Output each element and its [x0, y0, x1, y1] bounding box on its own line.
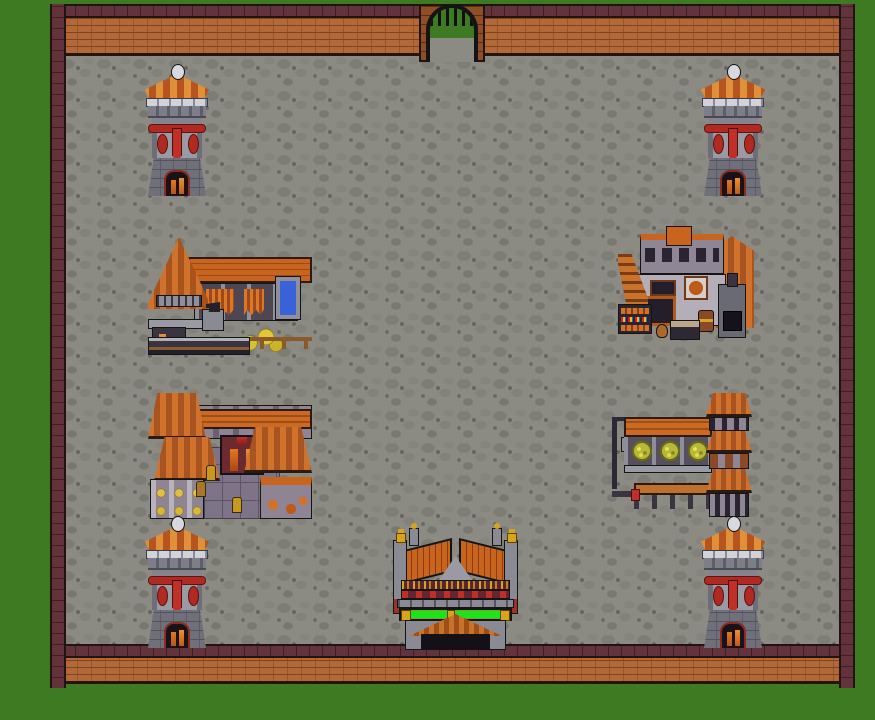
tower-shield-icon: [713, 586, 724, 606]
shop-window: [650, 280, 676, 296]
tower-red-banner: [728, 580, 738, 614]
market-figure: [196, 481, 206, 497]
gold-ornament-band: [401, 580, 510, 590]
tower-battlement: [148, 558, 206, 570]
tower-shield-icon: [157, 134, 168, 154]
stone-entablature: [397, 599, 514, 608]
tower-tier-wall: [709, 417, 749, 431]
game-stage: [0, 0, 875, 720]
gate-opening[interactable]: [430, 8, 474, 62]
tower-red-banner: [172, 580, 182, 614]
anvil: [202, 309, 224, 331]
tower-tier-roof: [706, 431, 752, 453]
market-side-stall[interactable]: [260, 477, 312, 519]
blue-door[interactable]: [276, 277, 300, 319]
produce-stall[interactable]: [612, 393, 752, 517]
portcullis-bars-icon: [430, 8, 474, 26]
red-colonnade-band: [401, 590, 510, 599]
market-hall[interactable]: [148, 393, 312, 520]
barrel: [698, 310, 714, 332]
wall-left: [50, 4, 66, 688]
tower-shield-icon: [188, 586, 199, 606]
roof-tower: [706, 393, 752, 517]
wall-brick: [50, 658, 855, 684]
clay-pot: [656, 324, 668, 338]
shop-sign: [684, 276, 708, 300]
pump-lever[interactable]: [612, 491, 638, 497]
tower-top-left[interactable]: [140, 64, 214, 196]
crate: [670, 320, 700, 340]
tower-bottom-right[interactable]: [696, 516, 770, 648]
tower-finial: [727, 64, 741, 80]
tower-shield-icon: [744, 134, 755, 154]
tower-tier-wall: [709, 453, 749, 469]
wreath[interactable]: [688, 441, 708, 461]
tower-battlement: [704, 558, 762, 570]
smith-vent: [156, 295, 202, 307]
hanging-pole: [612, 417, 617, 489]
tower-tier-roof: [706, 469, 752, 493]
hall-doorway[interactable]: [421, 634, 490, 650]
market-figure: [232, 497, 242, 513]
stall-canopy-roof: [624, 417, 712, 437]
stove: [718, 284, 746, 338]
market-hip-roof: [148, 393, 206, 439]
tower-finial: [171, 64, 185, 80]
tower-battlement: [704, 106, 762, 118]
market-hip-roof: [244, 427, 312, 473]
general-shop[interactable]: [618, 226, 754, 346]
tower-red-banner: [172, 128, 182, 162]
stall-shelf: [624, 465, 712, 473]
wreath[interactable]: [660, 441, 680, 461]
wreath[interactable]: [632, 441, 652, 461]
shop-dormer: [666, 226, 692, 246]
tower-entrance-arch[interactable]: [720, 622, 746, 648]
goods-stand[interactable]: [618, 304, 652, 334]
wall-right: [839, 4, 855, 688]
blacksmith-stall[interactable]: [148, 233, 312, 355]
work-table: [148, 337, 250, 355]
tower-tier-roof: [706, 393, 752, 417]
tower-colonnade: [709, 493, 749, 517]
wall-bottom: [50, 644, 855, 688]
north-gate[interactable]: [419, 4, 485, 62]
tower-entrance-arch[interactable]: [720, 170, 746, 196]
gate-arch: [426, 4, 478, 62]
tower-entrance-arch[interactable]: [164, 622, 190, 648]
tower-finial: [171, 516, 185, 532]
tower-entrance-arch[interactable]: [164, 170, 190, 196]
tower-finial: [727, 516, 741, 532]
tower-shield-icon: [157, 586, 168, 606]
tower-shield-icon: [713, 134, 724, 154]
tower-top-right[interactable]: [696, 64, 770, 196]
finial-post: [492, 528, 502, 546]
tower-battlement: [148, 106, 206, 118]
tower-red-banner: [728, 128, 738, 162]
tower-shield-icon: [188, 134, 199, 154]
tower-bottom-left[interactable]: [140, 516, 214, 648]
market-figure: [206, 465, 216, 481]
finial-post: [409, 528, 419, 546]
south-hall[interactable]: [393, 528, 518, 650]
tower-shield-icon: [744, 586, 755, 606]
